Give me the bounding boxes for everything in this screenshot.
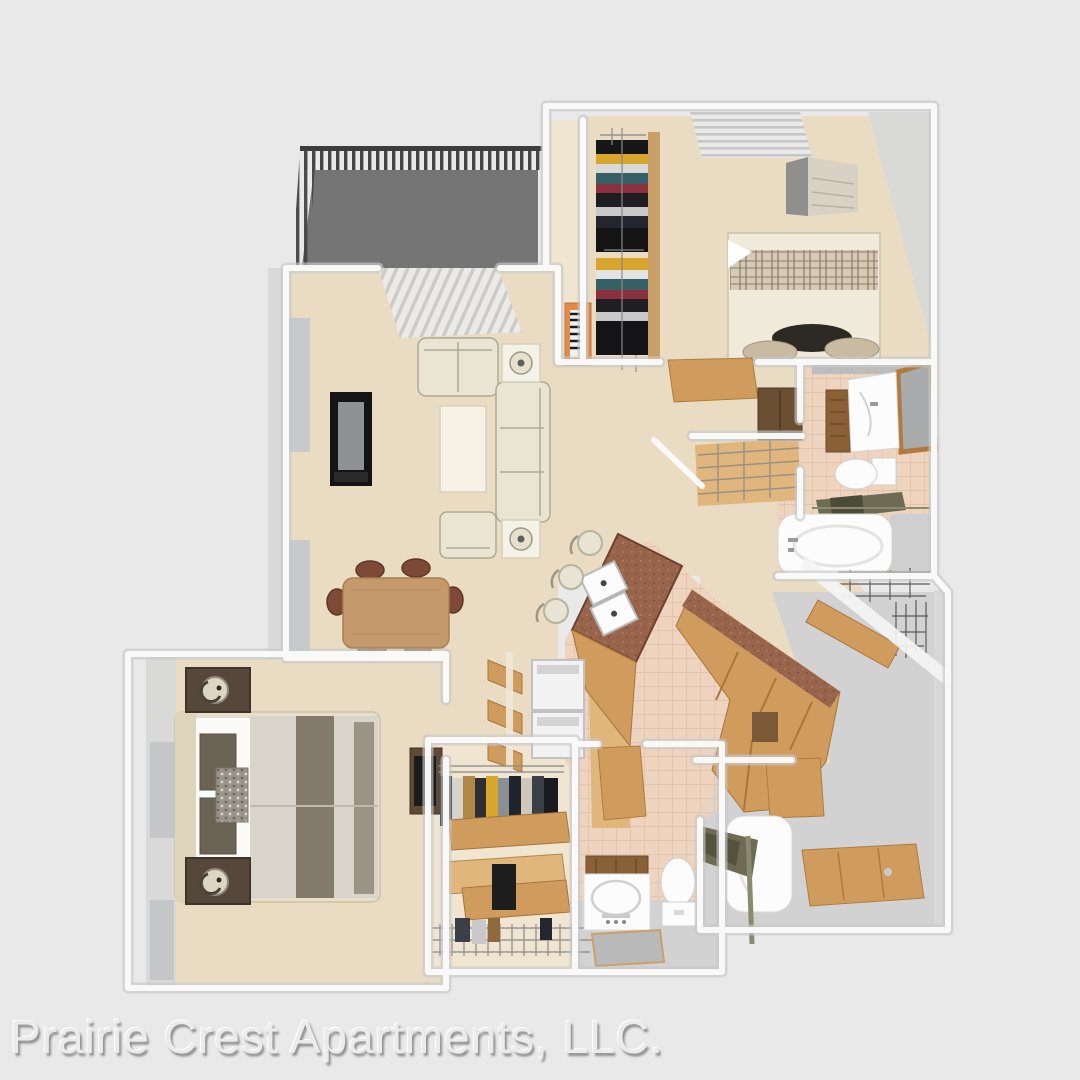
tubroom-door-open (766, 758, 824, 818)
coffee-table (440, 406, 486, 492)
patio-vertical-blinds (378, 268, 522, 338)
accent-pillow (216, 768, 248, 822)
nightstand-lamp-north (186, 668, 250, 712)
bedroom2-door-open (668, 358, 758, 402)
bath2-toilet (661, 858, 696, 926)
balcony-railing-top (300, 148, 542, 170)
dining-table (343, 578, 449, 648)
armchair (440, 512, 496, 558)
bedroom2-window-blinds (690, 112, 812, 158)
end-table-lamp-south (502, 520, 540, 558)
nightstand-lamp-south (186, 858, 250, 904)
bath2-door-open (598, 746, 646, 820)
toilet (835, 458, 896, 489)
closet-clothes-rack (596, 128, 660, 372)
entry-door-open (802, 844, 924, 906)
master-window-2 (150, 900, 174, 980)
loveseat (418, 338, 498, 396)
sofa (496, 382, 550, 522)
door-hole (884, 868, 892, 876)
floor-plan-image: Prairie Crest Apartments, LLC. (0, 0, 1080, 1080)
closet-dark-item (492, 864, 516, 910)
bath-mat (592, 930, 664, 966)
linen-closet-floor (695, 438, 801, 506)
dresser (786, 157, 858, 216)
tv-console (330, 392, 372, 486)
end-table-lamp-north (502, 344, 540, 382)
master-window-1 (150, 742, 174, 838)
balcony-rail-bar (300, 146, 542, 151)
dining-chair (402, 559, 430, 577)
watermark-company-name: Prairie Crest Apartments, LLC. (10, 1010, 664, 1064)
floor-plan-render (0, 0, 1080, 1080)
dining-chair (356, 561, 384, 579)
bath2-vanity (584, 856, 650, 930)
plaid-bed (728, 233, 880, 363)
